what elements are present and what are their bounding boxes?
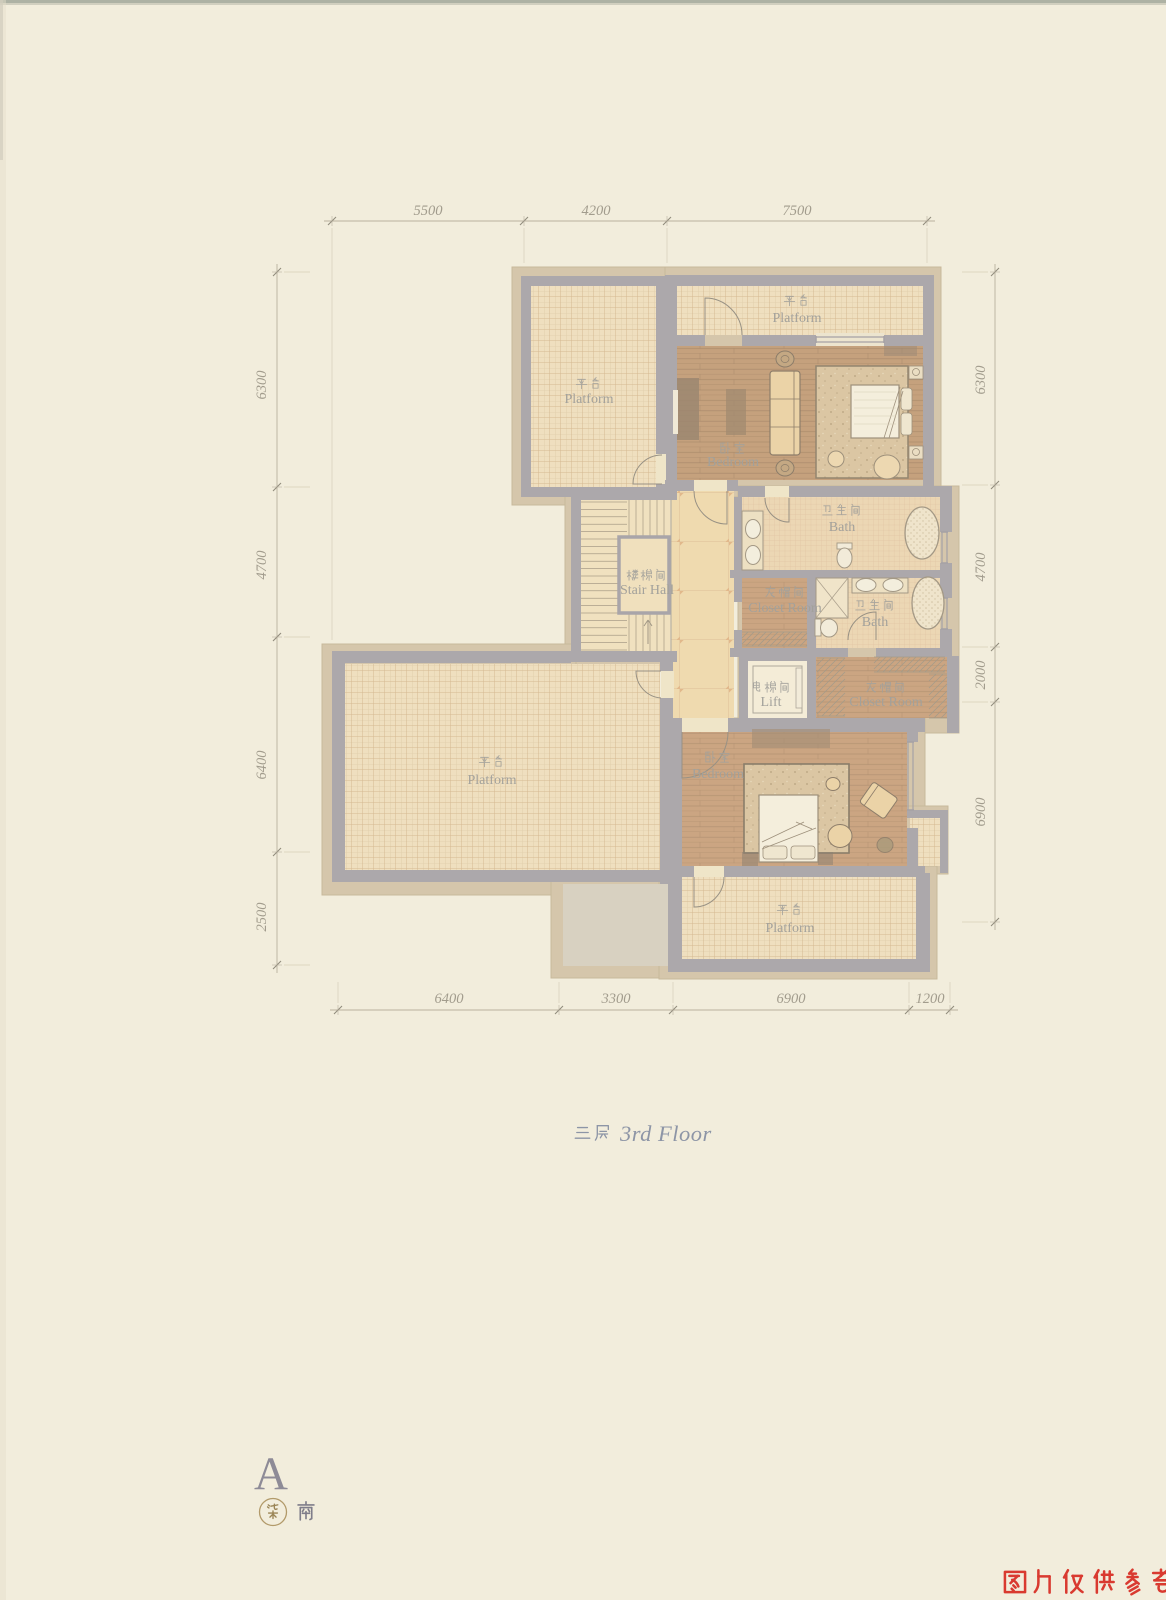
svg-text:3rd Floor: 3rd Floor — [619, 1121, 712, 1146]
svg-text:A: A — [254, 1448, 288, 1500]
